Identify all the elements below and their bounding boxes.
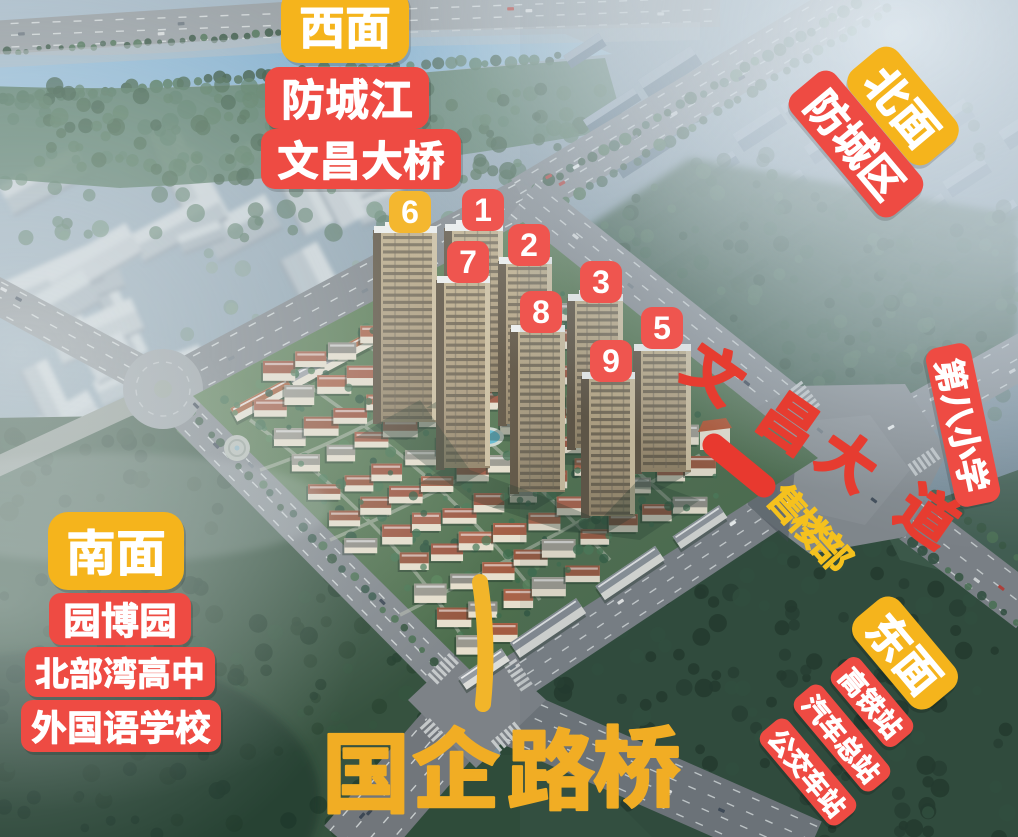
- svg-text:6: 6: [401, 194, 419, 230]
- svg-text:8: 8: [532, 294, 550, 330]
- svg-text:7: 7: [459, 244, 477, 280]
- svg-text:1: 1: [474, 192, 492, 228]
- svg-text:3: 3: [592, 264, 610, 300]
- svg-text:5: 5: [653, 310, 671, 346]
- svg-text:2: 2: [520, 227, 538, 263]
- svg-text:9: 9: [602, 343, 620, 379]
